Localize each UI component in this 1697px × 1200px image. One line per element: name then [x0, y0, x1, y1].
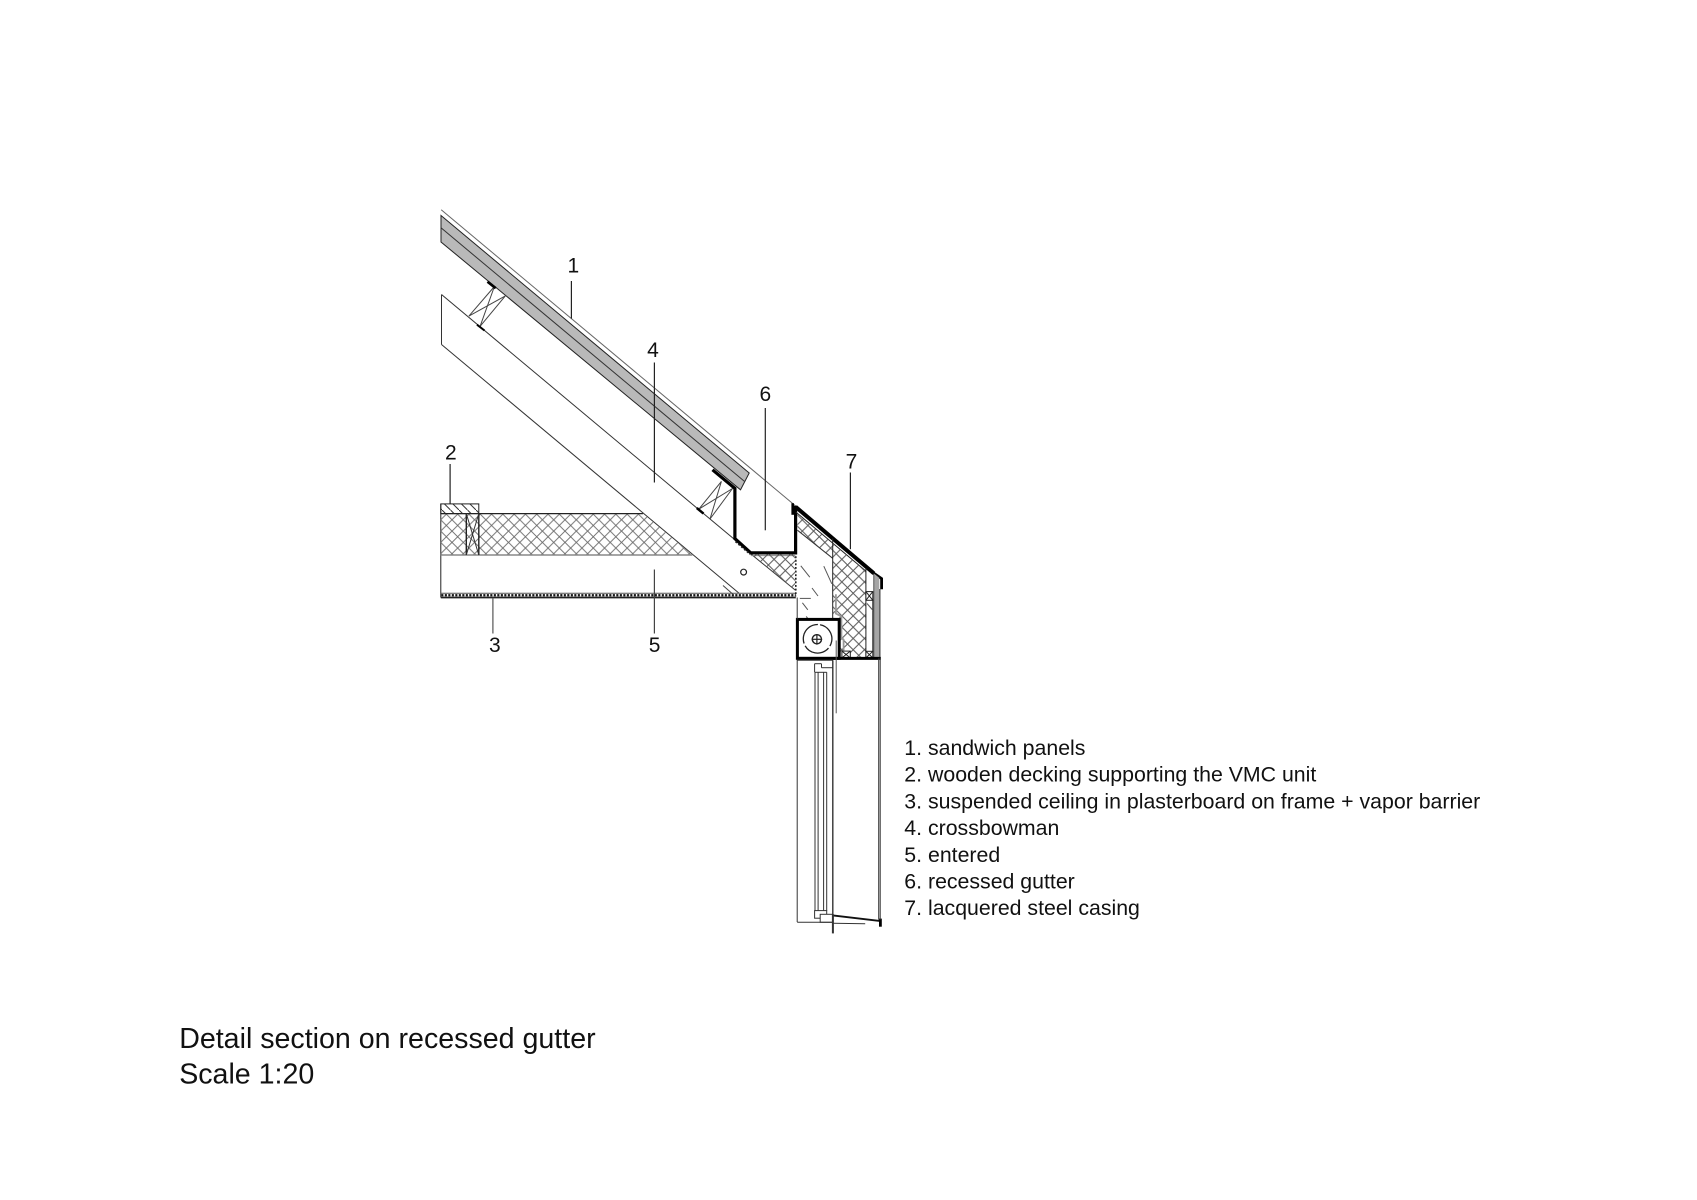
svg-text:7. lacquered steel casing: 7. lacquered steel casing — [904, 896, 1140, 920]
svg-text:2: 2 — [445, 442, 457, 465]
svg-text:1. sandwich panels: 1. sandwich panels — [904, 736, 1085, 760]
svg-text:6. recessed gutter: 6. recessed gutter — [904, 869, 1074, 893]
svg-text:7: 7 — [846, 451, 858, 474]
svg-text:Scale 1:20: Scale 1:20 — [179, 1059, 314, 1091]
svg-text:1: 1 — [568, 255, 580, 278]
svg-text:4. crossbowman: 4. crossbowman — [904, 816, 1059, 840]
svg-text:3. suspended ceiling in plaste: 3. suspended ceiling in plasterboard on … — [904, 789, 1480, 813]
svg-text:4: 4 — [647, 339, 659, 362]
svg-text:5: 5 — [649, 634, 661, 657]
svg-text:3: 3 — [489, 634, 501, 657]
svg-text:2. wooden decking supporting t: 2. wooden decking supporting the VMC uni… — [904, 763, 1316, 787]
svg-text:5. entered: 5. entered — [904, 843, 1000, 867]
svg-text:Detail section on recessed gut: Detail section on recessed gutter — [179, 1023, 596, 1055]
svg-text:6: 6 — [759, 383, 771, 406]
